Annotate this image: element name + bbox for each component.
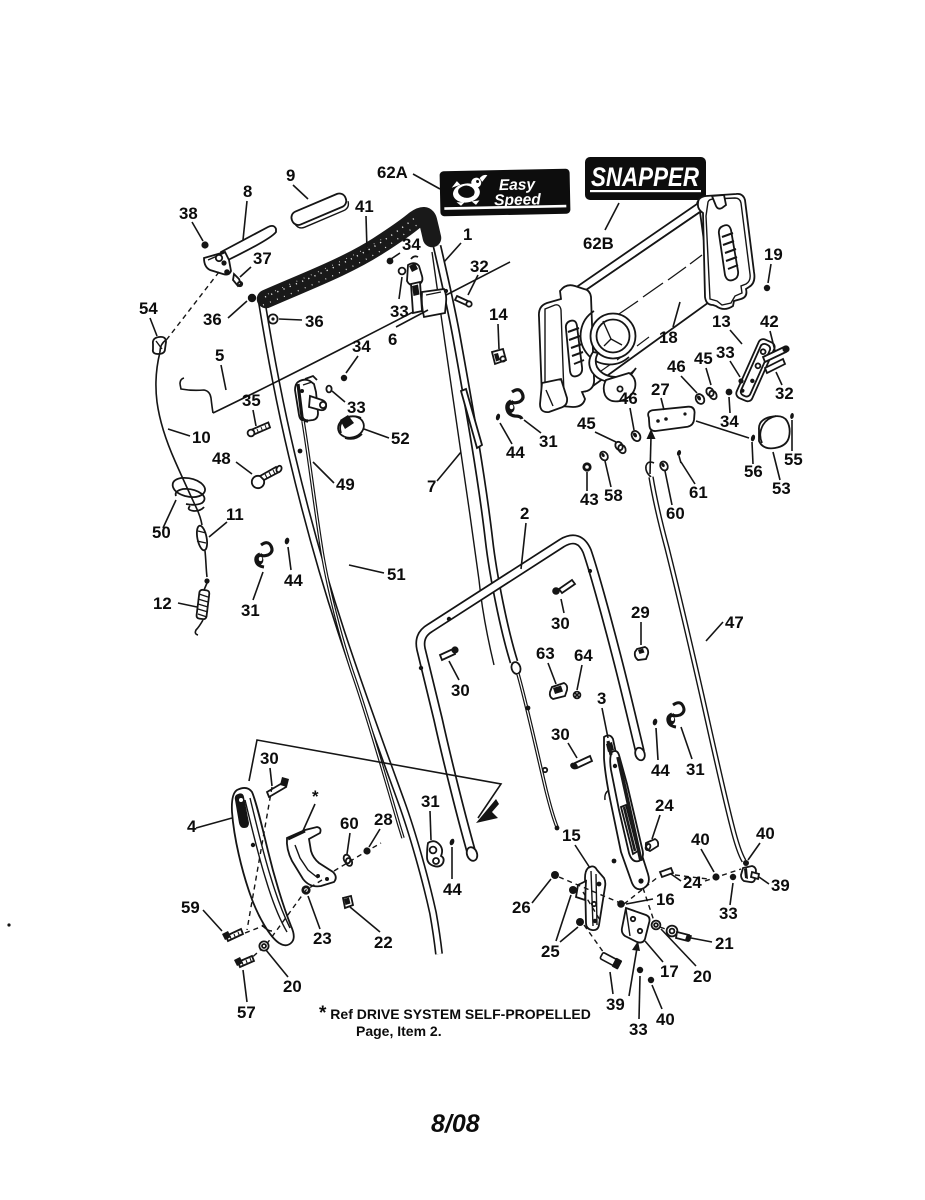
svg-text:39: 39 <box>771 876 790 895</box>
svg-text:40: 40 <box>756 824 775 843</box>
svg-text:44: 44 <box>651 761 670 780</box>
svg-text:28: 28 <box>374 810 393 829</box>
svg-text:30: 30 <box>451 681 470 700</box>
svg-text:55: 55 <box>784 450 803 469</box>
svg-text:61: 61 <box>689 483 708 502</box>
svg-text:32: 32 <box>775 384 794 403</box>
svg-text:38: 38 <box>179 204 198 223</box>
svg-text:8/08: 8/08 <box>431 1110 480 1138</box>
svg-text:41: 41 <box>355 197 374 216</box>
svg-text:40: 40 <box>691 830 710 849</box>
svg-text:23: 23 <box>313 929 332 948</box>
svg-text:33: 33 <box>716 343 735 362</box>
svg-text:Page, Item 2.: Page, Item 2. <box>356 1023 442 1039</box>
svg-text:31: 31 <box>241 601 260 620</box>
svg-text:7: 7 <box>427 477 436 496</box>
svg-text:26: 26 <box>512 898 531 917</box>
svg-text:24: 24 <box>683 873 702 892</box>
svg-text:17: 17 <box>660 962 679 981</box>
svg-text:32: 32 <box>470 257 489 276</box>
svg-text:13: 13 <box>712 312 731 331</box>
svg-text:64: 64 <box>574 646 593 665</box>
svg-text:56: 56 <box>744 462 763 481</box>
svg-text:36: 36 <box>305 312 324 331</box>
svg-text:24: 24 <box>655 796 674 815</box>
svg-text:45: 45 <box>694 349 713 368</box>
svg-text:52: 52 <box>391 429 410 448</box>
svg-text:20: 20 <box>693 967 712 986</box>
svg-text:*: * <box>312 787 319 806</box>
svg-text:22: 22 <box>374 933 393 952</box>
svg-text:30: 30 <box>260 749 279 768</box>
svg-text:35: 35 <box>242 391 261 410</box>
svg-text:14: 14 <box>489 305 508 324</box>
svg-text:46: 46 <box>667 357 686 376</box>
svg-text:60: 60 <box>340 814 359 833</box>
svg-text:37: 37 <box>253 249 272 268</box>
svg-text:Speed: Speed <box>494 191 541 209</box>
svg-text:44: 44 <box>284 571 303 590</box>
svg-text:8: 8 <box>243 182 252 201</box>
svg-text:12: 12 <box>153 594 172 613</box>
svg-text:31: 31 <box>421 792 440 811</box>
svg-text:34: 34 <box>352 337 371 356</box>
svg-text:46: 46 <box>619 389 638 408</box>
svg-text:31: 31 <box>686 760 705 779</box>
svg-text:51: 51 <box>387 565 406 584</box>
svg-text:18: 18 <box>659 328 678 347</box>
svg-text:20: 20 <box>283 977 302 996</box>
svg-text:11: 11 <box>226 505 244 524</box>
svg-text:58: 58 <box>604 486 623 505</box>
svg-text:36: 36 <box>203 310 222 329</box>
svg-text:62A: 62A <box>377 163 408 182</box>
svg-text:49: 49 <box>336 475 355 494</box>
svg-text:40: 40 <box>656 1010 675 1029</box>
svg-text:34: 34 <box>720 412 739 431</box>
svg-text:30: 30 <box>551 614 570 633</box>
svg-text:* Ref DRIVE SYSTEM SELF-PROPEL: * Ref DRIVE SYSTEM SELF-PROPELLED <box>319 1003 591 1024</box>
svg-text:62B: 62B <box>583 234 614 253</box>
svg-text:25: 25 <box>541 942 560 961</box>
svg-text:63: 63 <box>536 644 555 663</box>
svg-text:59: 59 <box>181 898 200 917</box>
svg-text:29: 29 <box>631 603 650 622</box>
svg-text:57: 57 <box>237 1003 256 1022</box>
svg-text:45: 45 <box>577 414 596 433</box>
svg-text:2: 2 <box>520 504 529 523</box>
svg-text:34: 34 <box>402 235 421 254</box>
svg-text:15: 15 <box>562 826 581 845</box>
svg-text:50: 50 <box>152 523 171 542</box>
svg-text:6: 6 <box>388 330 397 349</box>
svg-text:30: 30 <box>551 725 570 744</box>
svg-text:39: 39 <box>606 995 625 1014</box>
svg-text:33: 33 <box>347 398 366 417</box>
svg-text:33: 33 <box>719 904 738 923</box>
svg-text:10: 10 <box>192 428 211 447</box>
svg-text:1: 1 <box>463 225 472 244</box>
svg-text:44: 44 <box>506 443 525 462</box>
svg-text:60: 60 <box>666 504 685 523</box>
svg-text:44: 44 <box>443 880 462 899</box>
svg-text:16: 16 <box>656 890 675 909</box>
svg-text:42: 42 <box>760 312 779 331</box>
svg-text:53: 53 <box>772 479 791 498</box>
svg-text:4: 4 <box>187 817 197 836</box>
svg-text:19: 19 <box>764 245 783 264</box>
svg-text:5: 5 <box>215 346 224 365</box>
svg-text:33: 33 <box>629 1020 648 1039</box>
svg-text:9: 9 <box>286 166 295 185</box>
svg-text:33: 33 <box>390 302 409 321</box>
svg-text:43: 43 <box>580 490 599 509</box>
svg-text:3: 3 <box>597 689 606 708</box>
svg-text:47: 47 <box>725 613 744 632</box>
svg-text:21: 21 <box>715 934 734 953</box>
svg-text:31: 31 <box>539 432 558 451</box>
svg-text:27: 27 <box>651 380 670 399</box>
svg-text:54: 54 <box>139 299 158 318</box>
svg-text:48: 48 <box>212 449 231 468</box>
svg-text:SNAPPER: SNAPPER <box>591 162 699 192</box>
